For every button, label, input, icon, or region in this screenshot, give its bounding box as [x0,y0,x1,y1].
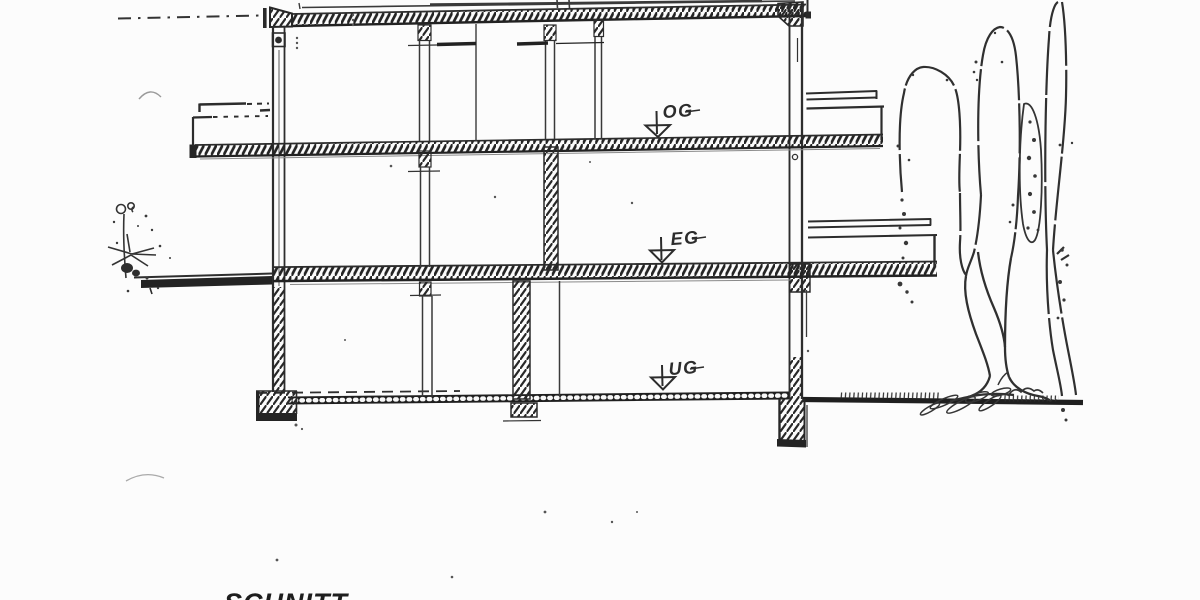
svg-text:SCHNITT: SCHNITT [224,588,349,600]
